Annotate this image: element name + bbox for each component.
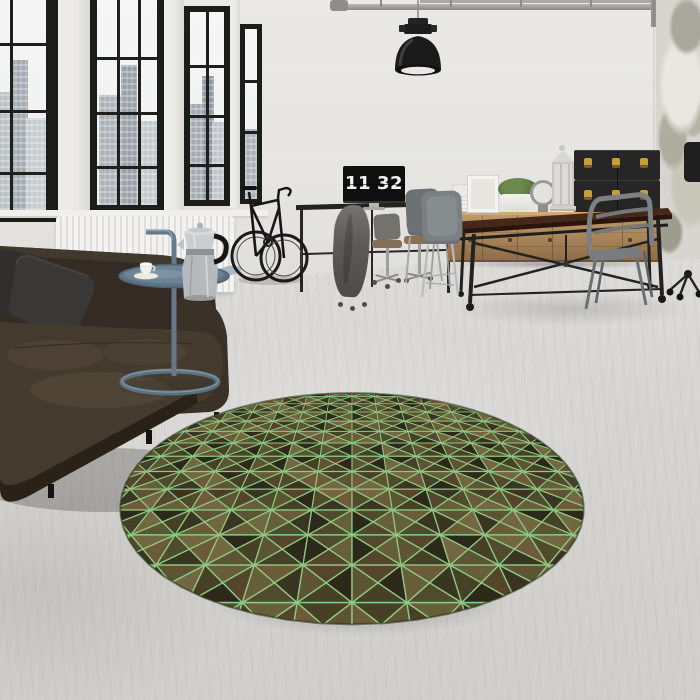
window-muntin [206, 12, 209, 200]
window-2-glass [97, 0, 157, 205]
window-muntin [10, 0, 13, 210]
window-3 [184, 6, 230, 206]
ceiling-pipe [330, 4, 700, 10]
caster-wheel [385, 284, 390, 289]
table-stem [146, 232, 174, 376]
chair-base-spokes [670, 274, 699, 295]
chair-base-hub [684, 270, 692, 278]
skyline-building [121, 65, 137, 205]
flip-clock-split-line [343, 184, 405, 185]
trunk-latch [612, 158, 620, 168]
side-table [116, 220, 240, 404]
window-1 [0, 0, 58, 222]
window-muntin [190, 65, 224, 68]
pipe-hanger [590, 0, 592, 7]
window-2 [90, 0, 164, 212]
window-muntin [138, 0, 141, 205]
right-office-chair-back [684, 142, 700, 182]
trunk-latch [640, 158, 648, 168]
skyline-building [212, 122, 224, 200]
window-muntin [97, 112, 157, 115]
office-chair-column [386, 248, 389, 276]
moka-handle [214, 236, 226, 262]
window-muntin [0, 172, 46, 175]
pipe-hanger [450, 0, 452, 7]
cup-rim [140, 263, 152, 267]
window-muntin [245, 80, 257, 83]
caster-wheel [696, 291, 700, 298]
monitor-base [363, 207, 385, 210]
pipe-elbow [330, 0, 348, 11]
sofa-leg [48, 484, 54, 498]
bike-saddle [242, 186, 257, 190]
window-pillar [58, 0, 90, 222]
metal-chairs [400, 185, 670, 320]
window-3-glass [190, 12, 224, 200]
rug-svg [130, 380, 580, 640]
lamp-diffuser [401, 67, 435, 75]
caster-wheel [667, 289, 674, 296]
lantern-cap [552, 150, 574, 162]
window-muntin [190, 164, 224, 167]
pipe-hanger [380, 0, 382, 7]
caster-wheel [362, 302, 367, 307]
lamp-nub [399, 25, 405, 32]
window-1-glass [0, 0, 46, 210]
loft-scene: 11 32 [0, 0, 700, 700]
window-muntin [190, 115, 224, 118]
caster-wheel [372, 280, 377, 285]
lamp-motor [404, 24, 432, 34]
trunk-latch [584, 158, 592, 168]
window-muntin [0, 43, 46, 46]
moka-spout [177, 238, 184, 250]
window-muntin [245, 131, 257, 134]
window-muntin [97, 57, 157, 60]
caster-wheel [338, 302, 343, 307]
caster-wheel [677, 294, 684, 301]
pipe-hanger [520, 0, 522, 7]
skyline-building [26, 118, 46, 210]
caster-wheel [350, 306, 355, 311]
lamp-nub [431, 25, 437, 32]
moka-pot [177, 223, 226, 302]
metal-chair-right-arm [586, 195, 652, 309]
window-muntin [117, 0, 120, 205]
window-muntin [0, 110, 46, 113]
window-pillar [164, 0, 184, 214]
pendant-lamp [392, 0, 448, 84]
right-office-chair-base [666, 264, 700, 302]
office-chair-back [373, 213, 401, 241]
bike-handlebar [278, 188, 291, 198]
window-muntin [97, 166, 157, 169]
office-chair-seat [372, 240, 402, 248]
